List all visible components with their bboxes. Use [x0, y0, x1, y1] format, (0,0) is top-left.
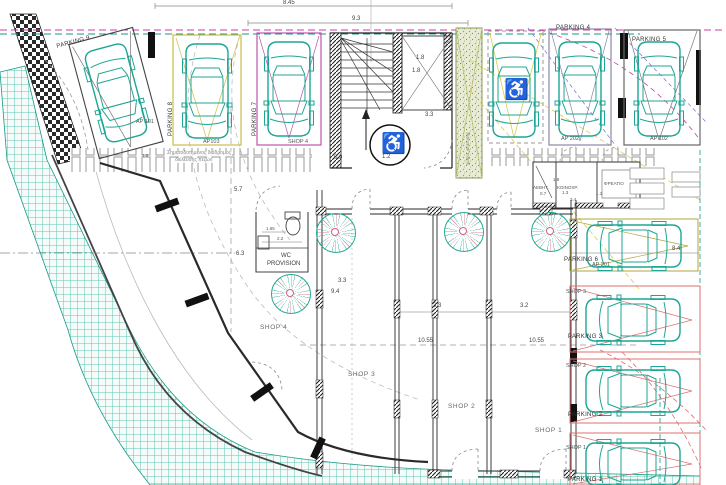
spiral-stair-shop2 [444, 212, 484, 252]
dim-1.8: 1.8 [412, 68, 420, 74]
dim-1.65: 1.65 [266, 227, 275, 232]
shop-2-label: SHOP 2 [448, 404, 475, 411]
stall-label-parking-4: PARKING 4 [556, 25, 590, 31]
spiral-stair-shop3 [316, 213, 356, 253]
dim-10.55: 10.55 [418, 338, 433, 344]
pedestrian-note-line1: Σηματοδοτημένος διάδρομος [166, 151, 232, 156]
dim-9.3: 9.3 [352, 16, 360, 22]
unit-label-shop2-stall: SHOP 2 [566, 364, 586, 370]
dim-5.7: 5.7 [234, 187, 242, 193]
spiral-stair-shop4 [271, 274, 311, 314]
pedestrian-note-line2: διέλευσης πεζών [174, 158, 213, 163]
stall-label-parking-2: PARKING 2 [568, 412, 602, 418]
stall-label-parking-3: PARKING 3 [568, 334, 602, 340]
unit-label-shop4: SHOP 4 [288, 140, 308, 146]
dim-3.3: 3.3 [433, 303, 441, 309]
stall-parking-5 [624, 30, 700, 145]
dim-1.0: 1.0 [142, 154, 148, 159]
dim-1.8: 1.8 [416, 55, 424, 61]
stall-parking-4 [549, 29, 611, 145]
wc-provision-room [256, 186, 308, 272]
unit-label-shop1-stall: SHOP 1 [566, 446, 586, 452]
plan-graphics [0, 0, 726, 485]
unit-label-ap201: AP 201 [592, 263, 610, 269]
dim-3.4: 3.4 [570, 198, 576, 203]
dim-6.3: 6.3 [236, 251, 244, 257]
stall-label-parking-7: PARKING 7 [252, 102, 258, 136]
dim-1.8: 1.8 [553, 178, 559, 183]
planting-note: χώρος φύτευσης [466, 132, 471, 165]
dim-0.7: 0.7 [540, 192, 546, 197]
stall-label-parking-1: PARKING 1 [568, 477, 602, 483]
shop-3-label: SHOP 3 [348, 372, 375, 379]
unit-label-ap101: AP 101 [136, 120, 154, 126]
dim-10.55: 10.55 [529, 338, 544, 344]
unit-label-ap202: AP 202 [561, 137, 579, 143]
shop-1-label: SHOP 1 [535, 428, 562, 435]
spiral-stair-shop1 [531, 212, 571, 252]
dim-8.4: 8.4 [672, 246, 680, 252]
stall-parking-7 [257, 33, 321, 145]
dim-1.3: 1.3 [562, 191, 568, 196]
stair-treads [341, 38, 393, 112]
common-room-label: ΚΟΙΝΟΧΡ. [557, 186, 578, 191]
dim-3.3: 3.3 [425, 112, 433, 118]
wheelchair-icon: ♿ [381, 134, 406, 154]
dim-3.3: 3.3 [338, 278, 346, 284]
stall-label-parking-5: PARKING 5 [632, 37, 666, 43]
wc-label-line2: PROVISION [267, 261, 300, 267]
dim-1.2: 1.2 [382, 154, 390, 160]
shop-4-label: SHOP 4 [260, 325, 287, 332]
unit-label-ap102: AP 102 [650, 137, 668, 143]
shaft-room-label: ΦΡΕΑΤΙΟ [604, 182, 624, 187]
stall-label-parking-8: PARKING 8 [168, 102, 174, 136]
dim-2.2: 2.2 [277, 237, 283, 242]
unit-label-shop3-stall: SHOP 3 [566, 290, 586, 296]
wc-label-line1: WC [281, 253, 291, 259]
dim-9.4: 9.4 [331, 289, 339, 295]
wheelchair-icon: ♿ [504, 80, 529, 100]
floor-plan-drawing: ♿ ♿ 8.45 9.3 1.8 1.8 3.3 1.2 1.0 0.9 5.7… [0, 0, 726, 485]
boiler-room-label: ΛΕΒΗΤ. [533, 186, 549, 191]
right-steps [630, 168, 700, 209]
unit-label-ap103: AP103 [203, 140, 220, 146]
dim-1.1: 1.1 [596, 192, 602, 197]
dim-3.2: 3.2 [520, 303, 528, 309]
dim-8.45: 8.45 [283, 0, 295, 6]
dim-0.9: 0.9 [334, 155, 342, 161]
